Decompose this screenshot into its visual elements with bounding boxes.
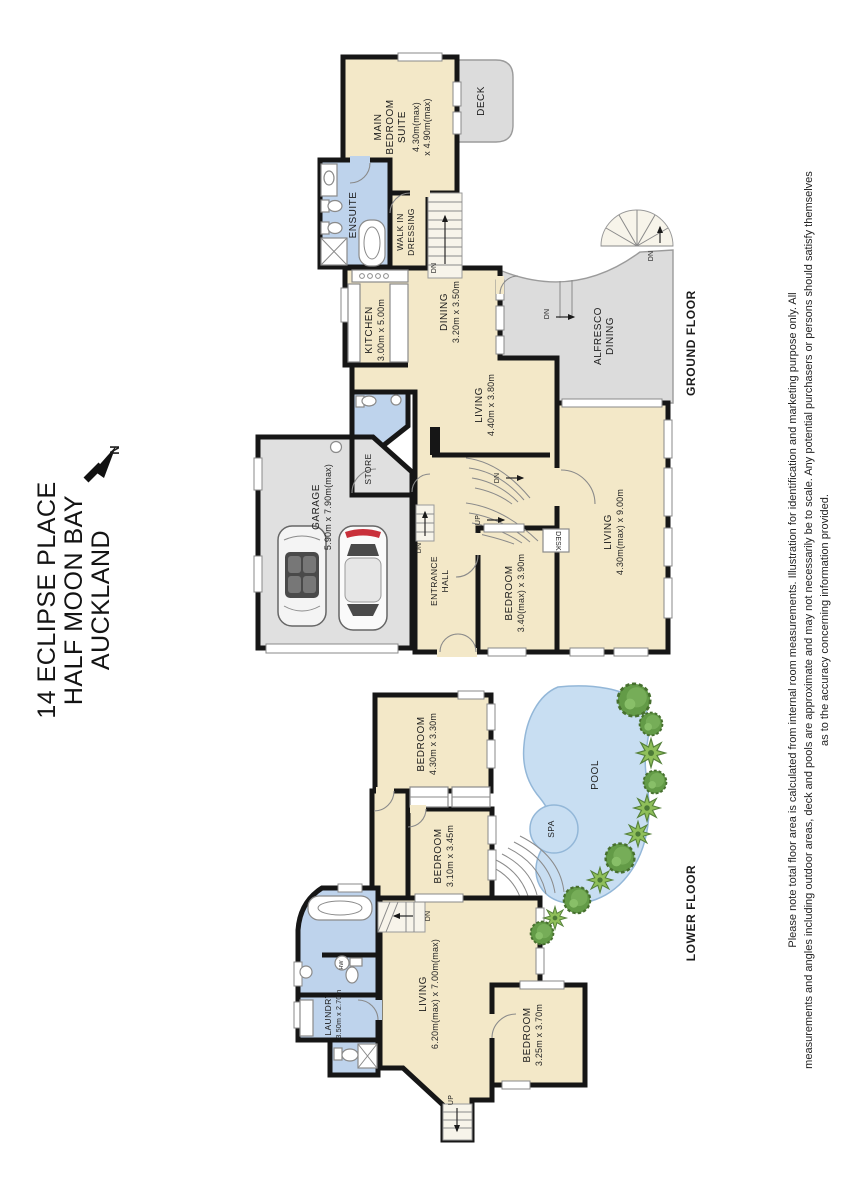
dn-label: DN (431, 263, 438, 274)
up-label: UP (475, 515, 482, 525)
kitchen-label: KITCHEN (364, 306, 375, 353)
pool-area (524, 686, 650, 904)
living-lower-dims: 6.20m(max) x 7.00m(max) (430, 939, 440, 1049)
store-label: STORE (363, 453, 373, 484)
disclaimer-line2: measurements and angles including outdoo… (803, 171, 815, 1069)
bedroom1-label: BEDROOM (416, 716, 427, 771)
living-lower-label: LIVING (418, 976, 429, 1012)
dining-label: DINING (439, 293, 450, 331)
garage-dims: 5.90m x 7.90m(max) (323, 464, 333, 550)
ensuite-label: ENSUITE (348, 192, 359, 239)
address-title: 14 ECLIPSE PLACE HALF MOON BAY AUCKLAND (33, 481, 115, 718)
bedroom3-dims: 3.25m x 3.70m (534, 1004, 544, 1066)
hw-label: HW (339, 960, 345, 970)
address-line3: AUCKLAND (87, 530, 115, 670)
alfresco-label: ALFRESCO (593, 307, 604, 365)
kitchen-dims: 3.00m x 5.00m (376, 299, 386, 361)
north-arrow-icon: N (86, 445, 122, 480)
lower-floor-title: LOWER FLOOR (684, 865, 698, 962)
address-line2: HALF MOON BAY (60, 495, 88, 705)
bedroom2-label: BEDROOM (433, 828, 444, 883)
main-bedroom-dims: 4.30m(max) (411, 102, 421, 152)
stairs-lower-down (378, 902, 425, 932)
car-convertible (278, 526, 326, 626)
up-label: UP (448, 1095, 455, 1105)
dn-label: DN (416, 543, 423, 554)
entry-steps (416, 505, 434, 541)
address-line1: 14 ECLIPSE PLACE (33, 481, 61, 718)
walk-in-label: DRESSING (406, 208, 416, 256)
living-main-label: LIVING (474, 387, 485, 423)
floor-plan-page: 14 ECLIPSE PLACE HALF MOON BAY AUCKLAND … (0, 0, 849, 1200)
bedroom-ground-dims: 3.40(max) x 3.90m (516, 554, 526, 632)
dn-label: DN (425, 911, 432, 922)
floor-plan-svg: 14 ECLIPSE PLACE HALF MOON BAY AUCKLAND … (0, 0, 849, 1200)
dn-label: DN (544, 309, 551, 320)
disclaimer-line3: as to the accuracy concerning informatio… (819, 494, 831, 746)
entrance-label: HALL (440, 570, 450, 593)
main-bedroom-label: MAIN (373, 114, 384, 141)
bedroom1-dims: 4.30m x 3.30m (428, 713, 438, 775)
entrance-label: ENTRANCE (429, 556, 439, 606)
dining-dims: 3.20m x 3.50m (451, 281, 461, 343)
main-bedroom-label: BEDROOM (385, 99, 396, 154)
bedroom3-label: BEDROOM (522, 1007, 533, 1062)
dn-label: DN (494, 473, 501, 484)
deck-label: DECK (476, 86, 487, 116)
bedroom-ground-label: BEDROOM (504, 565, 515, 620)
alfresco-label: DINING (605, 317, 616, 355)
laundry-dims: 3.50m x 2.70m (336, 990, 343, 1039)
car-sedan (339, 526, 387, 630)
living-big-label: LIVING (603, 514, 614, 550)
disclaimer-line1: Please note total floor area is calculat… (787, 292, 799, 947)
living-main-dims: 4.40m x 3.80m (486, 374, 496, 436)
living-big-dims: 4.30m(max) x 9.00m (615, 489, 625, 575)
bedroom2-dims: 3.10m x 3.45m (445, 825, 455, 887)
spa-label: SPA (546, 820, 556, 838)
garage-label: GARAGE (311, 484, 322, 530)
stairs-shaft-up (443, 1104, 472, 1140)
ground-floor-title: GROUND FLOOR (684, 290, 698, 396)
disclaimer: Please note total floor area is calculat… (787, 171, 831, 1069)
dn-label: DN (648, 251, 655, 262)
main-bedroom-label: SUITE (397, 111, 408, 143)
store-room (352, 437, 412, 495)
desk-label: DESK (554, 531, 561, 551)
pool-label: POOL (590, 760, 601, 790)
laundry-label: LAUNDRY (323, 992, 333, 1035)
walk-in-label: WALK IN (395, 213, 405, 250)
main-bedroom-dims: x 4.90m(max) (422, 98, 432, 155)
north-label: N (107, 445, 122, 454)
